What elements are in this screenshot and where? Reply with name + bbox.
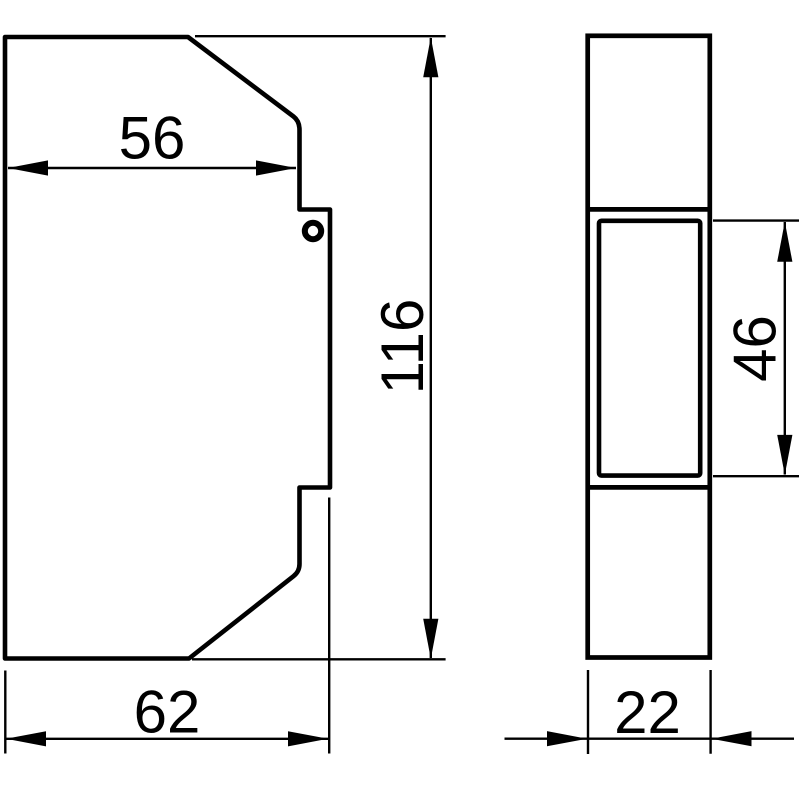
svg-text:62: 62 (134, 679, 201, 746)
svg-text:46: 46 (722, 315, 789, 382)
svg-text:22: 22 (614, 679, 681, 746)
svg-text:56: 56 (119, 105, 186, 172)
svg-text:116: 116 (369, 299, 436, 395)
